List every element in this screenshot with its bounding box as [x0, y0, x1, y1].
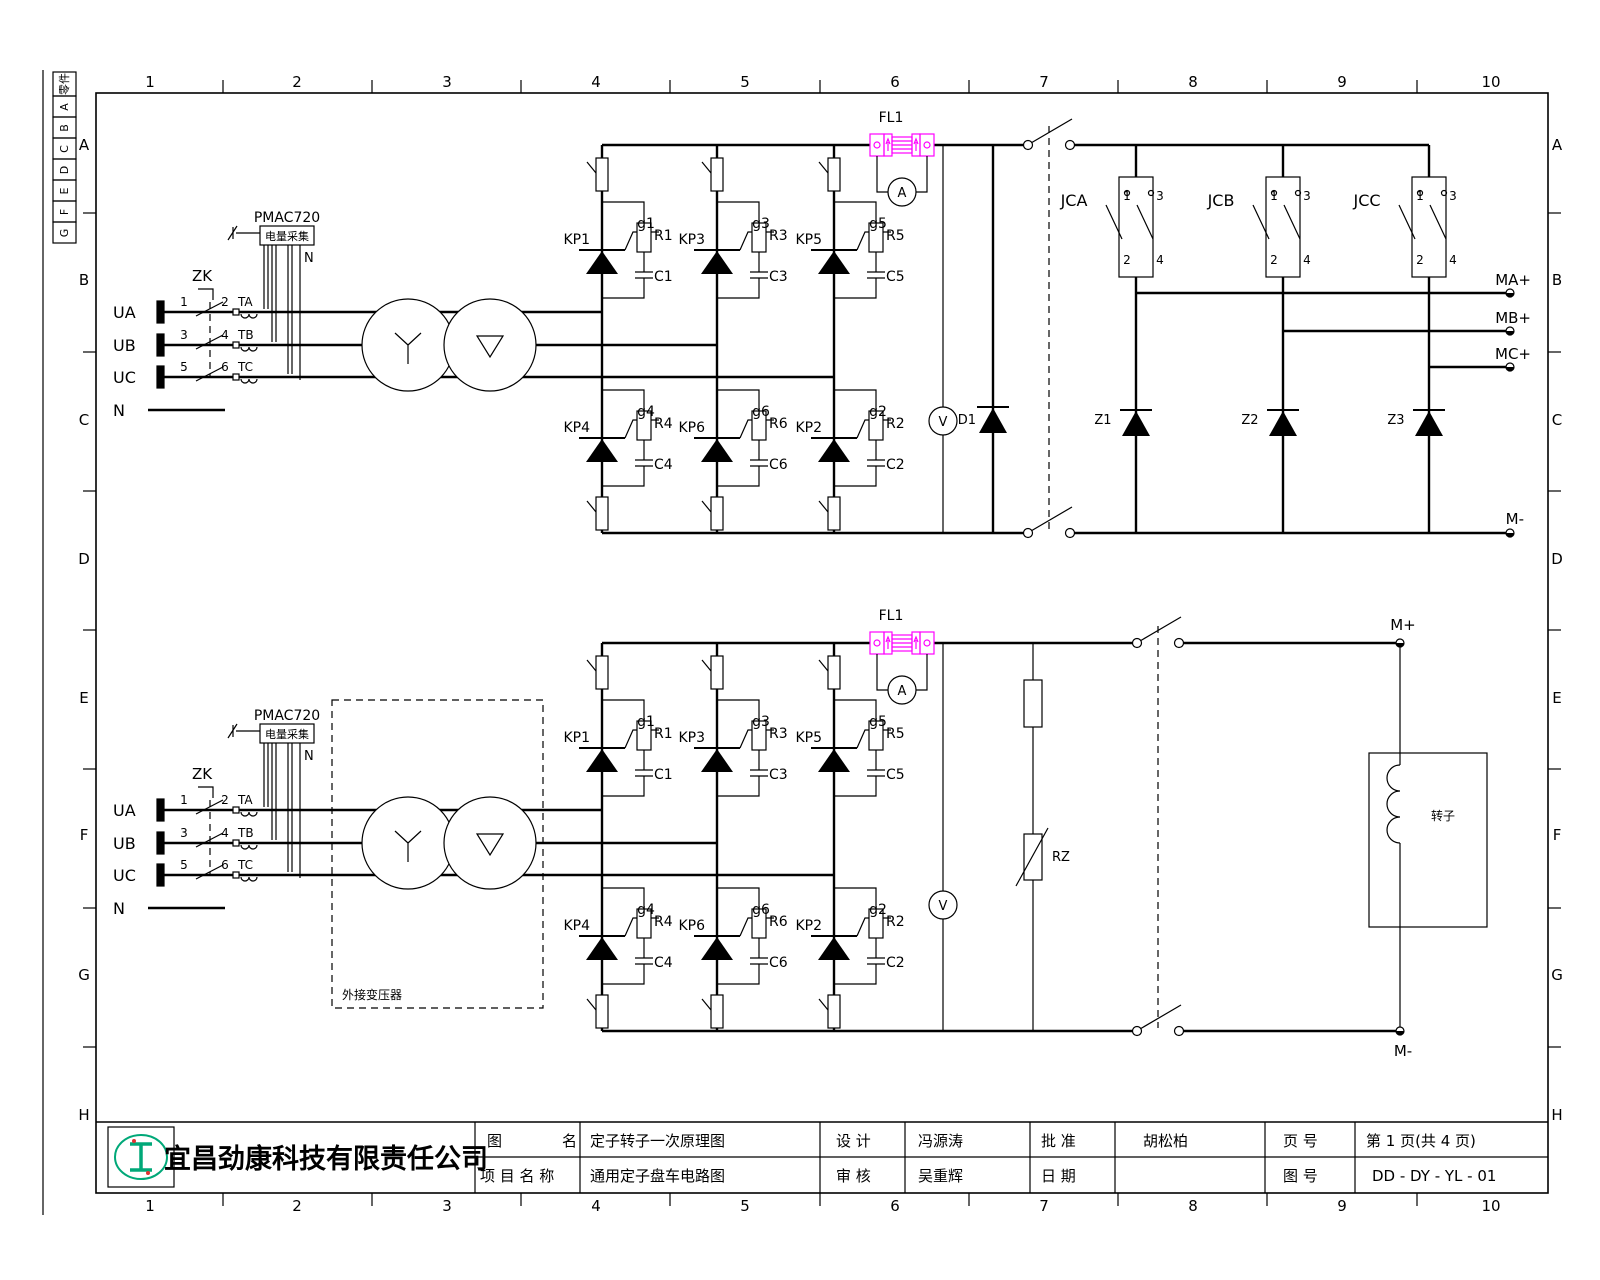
- varistor-label: RZ: [1052, 850, 1070, 865]
- contactor-terminal: 4: [1449, 253, 1457, 267]
- strip-label: E: [58, 187, 71, 194]
- project-name-value: 通用定子盘车电路图: [590, 1167, 725, 1185]
- freewheel-diode-label: D1: [958, 413, 976, 428]
- contactor-terminal: 1: [1270, 189, 1278, 203]
- page-label: 页 号: [1283, 1132, 1318, 1150]
- check-label: 审 核: [836, 1167, 871, 1185]
- rotor-load-label: 转子: [1431, 808, 1455, 823]
- strip-label: G: [58, 229, 71, 238]
- strip-label: B: [58, 124, 71, 132]
- ext-transformer-label: 外接变压器: [342, 987, 402, 1002]
- contactor-label: JCB: [1207, 191, 1235, 210]
- approver-name: 胡松柏: [1143, 1132, 1188, 1150]
- contactor-terminal: 2: [1416, 253, 1424, 267]
- voltmeter-label: V: [939, 415, 948, 430]
- page-value: 第 1 页(共 4 页): [1366, 1132, 1476, 1150]
- project-name-label: 项 目 名 称: [480, 1167, 554, 1185]
- voltmeter-label: V: [939, 899, 948, 914]
- contactor-terminal: 2: [1123, 253, 1131, 267]
- rotor-plus-terminal: M+: [1390, 616, 1416, 634]
- z-diode-label: Z3: [1387, 413, 1404, 428]
- output-terminal-label: M-: [1506, 510, 1524, 528]
- output-terminal-label: MB+: [1495, 309, 1531, 327]
- drawing-no-value: DD - DY - YL - 01: [1372, 1167, 1496, 1185]
- z-diode-label: Z2: [1241, 413, 1258, 428]
- contactor-terminal: 4: [1303, 253, 1311, 267]
- rotor-minus-terminal: M-: [1394, 1042, 1412, 1060]
- approve-label: 批 准: [1041, 1132, 1076, 1150]
- date-label: 日 期: [1041, 1167, 1076, 1185]
- company-name: 宜昌劲康科技有限责任公司: [164, 1143, 488, 1175]
- contactor-label: JCC: [1352, 191, 1380, 210]
- z-diode-label: Z1: [1094, 413, 1111, 428]
- drawing-name-label: 图 名: [487, 1132, 577, 1150]
- output-terminal-label: MC+: [1495, 345, 1531, 363]
- checker-name: 吴重辉: [918, 1167, 963, 1185]
- contactor-label: JCA: [1060, 191, 1088, 210]
- schematic-canvas: 1 2 3 4 5 6 7 8 9 10 A B C D E F G H: [0, 0, 1600, 1280]
- contactor-terminal: 1: [1123, 189, 1131, 203]
- contactor-terminal: 3: [1449, 189, 1457, 203]
- contactor-terminal: 3: [1156, 189, 1164, 203]
- strip-label: A: [58, 103, 71, 111]
- contactor-terminal: 1: [1416, 189, 1424, 203]
- designer-name: 冯源涛: [918, 1132, 963, 1150]
- drawing-name-value: 定子转子一次原理图: [590, 1132, 725, 1150]
- contactor-terminal: 2: [1270, 253, 1278, 267]
- output-terminal-label: MA+: [1495, 271, 1531, 289]
- strip-label: D: [58, 166, 71, 174]
- contactor-terminal: 3: [1303, 189, 1311, 203]
- design-label: 设 计: [836, 1132, 871, 1150]
- drawing-no-label: 图 号: [1283, 1167, 1318, 1185]
- cad-drawing-page: 1 2 3 4 5 6 7 8 9 10 A B C D E F G H: [0, 0, 1600, 1280]
- strip-label: C: [58, 145, 71, 153]
- contactor-terminal: 4: [1156, 253, 1164, 267]
- strip-label: F: [58, 209, 71, 215]
- strip-label: 零件: [58, 73, 71, 95]
